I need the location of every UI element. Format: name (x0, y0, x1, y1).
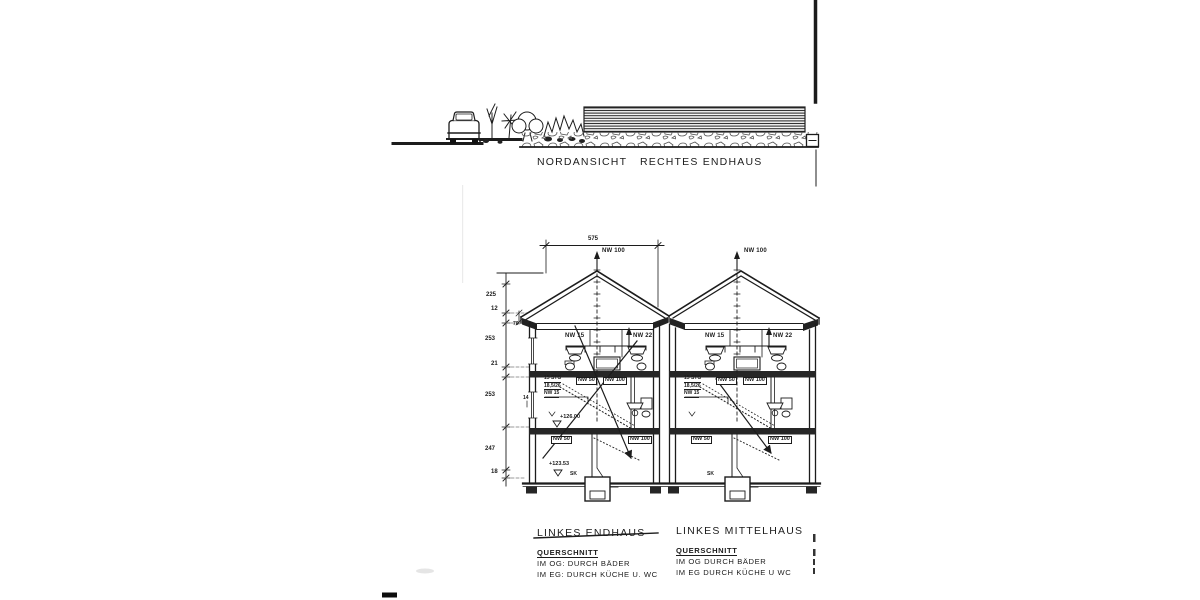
hatched-wall-band (584, 107, 805, 132)
right-house-arrow (716, 379, 771, 453)
scanned-architectural-sheet: NORDANSICHT RECHTES ENDHAUS 575 225 12 7… (0, 0, 1200, 600)
dim-footing: 18 (491, 469, 498, 475)
caption-mid-line1: IM OG DURCH BÄDER (676, 558, 766, 566)
nw50-kg-left: NW 50 (551, 436, 572, 444)
dim-slab-mid: 21 (491, 361, 498, 367)
level-eg: +126.00 (560, 415, 580, 421)
elevation-building-title: RECHTES ENDHAUS (640, 157, 762, 168)
dim-roof-height: 225 (486, 292, 496, 298)
vent-label-right: NW 100 (744, 248, 767, 254)
registration-bar (382, 593, 397, 598)
left-house-marks (543, 326, 637, 476)
dim-kg-height: 247 (485, 446, 495, 452)
elevation-view-title: NORDANSICHT (537, 157, 627, 168)
dim-knee: 70 (513, 322, 519, 327)
car-icon (447, 112, 481, 144)
dim-og-height: 253 (485, 336, 495, 342)
dim-top-width: 575 (588, 236, 598, 242)
nw100-eg-left: NW 100 (603, 377, 627, 385)
caption-left-title: LINKES ENDHAUS (537, 528, 645, 539)
stair-line1-right: 15 STG (684, 376, 701, 383)
nw50-eg-right: NW 50 (716, 377, 737, 385)
caption-left-sub: QUERSCHNITT (537, 549, 598, 558)
caption-mid-sub: QUERSCHNITT (676, 547, 737, 556)
nw50-kg-right: NW 50 (691, 436, 712, 444)
stair-line3-left: NW 15 (544, 391, 559, 398)
dim-wall-thickness: 14 (523, 396, 529, 401)
footing (523, 484, 820, 494)
nw22-og-right: NW 22 (773, 333, 792, 339)
nw50-eg-left: NW 50 (576, 377, 597, 385)
caption-mid-line2: IM EG DURCH KÜCHE U WC (676, 569, 791, 577)
drawing-linework (0, 0, 1200, 600)
nw100-kg-left: NW 100 (628, 436, 652, 444)
stair-line3-right: NW 15 (684, 391, 699, 398)
caption-left-line1: IM OG: DURCH BÄDER (537, 560, 630, 568)
nw100-kg-right: NW 100 (768, 436, 792, 444)
vent-label-left: NW 100 (602, 248, 625, 254)
nw100-eg-right: NW 100 (743, 377, 767, 385)
dim-eg-height: 253 (485, 392, 495, 398)
stone-base-strip (520, 132, 818, 147)
caption-edge-fragments (813, 534, 816, 574)
caption-left-line2: IM EG: DURCH KÜCHE U. WC (537, 571, 658, 579)
level-kg: +123.53 (549, 462, 569, 468)
caption-mid-title: LINKES MITTELHAUS (676, 526, 803, 537)
sk-label-left: SK (570, 472, 577, 477)
sk-label-right: SK (707, 472, 714, 477)
nw15-og-left: NW 15 (565, 333, 584, 339)
dim-slab-top: 12 (491, 306, 498, 312)
stair-line1-left: 15 STG (544, 376, 561, 383)
nw22-og-left: NW 22 (633, 333, 652, 339)
nw15-og-right: NW 15 (705, 333, 724, 339)
